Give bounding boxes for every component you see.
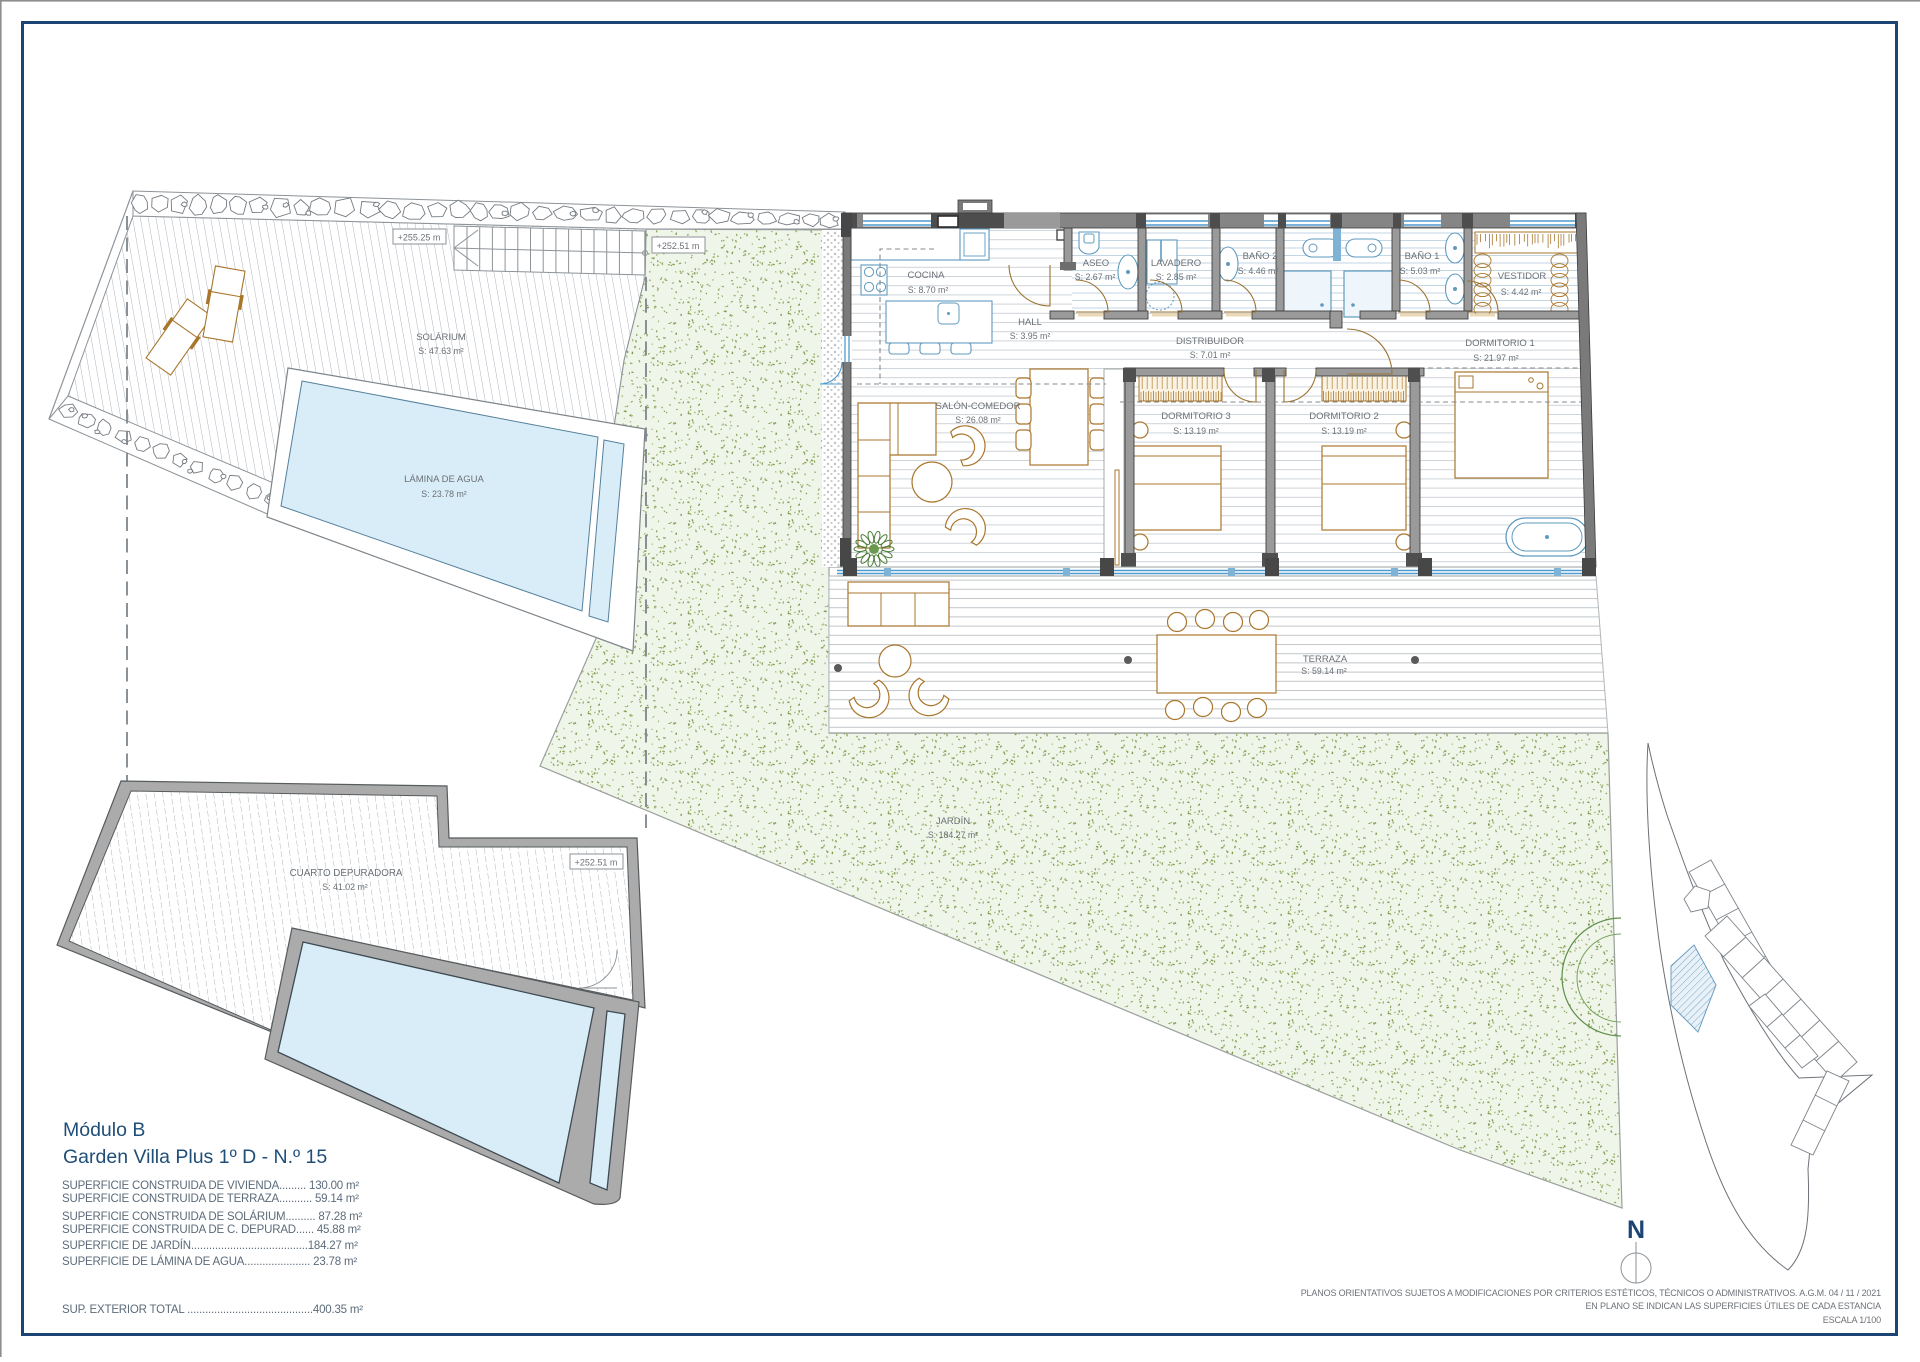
svg-text:S: 13.19 m²: S: 13.19 m² [1321,426,1367,436]
svg-text:S: 2.67 m²: S: 2.67 m² [1075,272,1116,282]
svg-text:S: 4.46 m²: S: 4.46 m² [1238,266,1279,276]
svg-text:SUPERFICIE DE JARDÍN..........: SUPERFICIE DE JARDÍN....................… [62,1239,358,1252]
svg-text:Módulo B: Módulo B [63,1119,145,1141]
svg-text:LAVADERO: LAVADERO [1151,258,1201,269]
svg-text:HALL: HALL [1018,317,1042,328]
svg-text:BAÑO 2: BAÑO 2 [1243,251,1278,262]
svg-text:DORMITORIO 1: DORMITORIO 1 [1465,338,1535,349]
svg-text:S: 26.08 m²: S: 26.08 m² [955,415,1001,425]
svg-text:VESTIDOR: VESTIDOR [1498,271,1547,282]
svg-text:+255.25 m: +255.25 m [398,233,441,243]
svg-text:S: 23.78 m²: S: 23.78 m² [421,489,467,499]
svg-text:SOLÁRIUM: SOLÁRIUM [416,332,466,343]
svg-text:COCINA: COCINA [908,270,946,281]
svg-text:S: 41.02 m²: S: 41.02 m² [322,882,368,892]
svg-text:SUPERFICIE CONSTRUIDA DE SOLÁR: SUPERFICIE CONSTRUIDA DE SOLÁRIUM.......… [62,1210,363,1223]
svg-text:S: 21.97 m²: S: 21.97 m² [1473,353,1519,363]
svg-text:Garden Villa Plus 1º D - N.º 1: Garden Villa Plus 1º D - N.º 15 [63,1146,327,1168]
svg-text:SUPERFICIE CONSTRUIDA DE TERRA: SUPERFICIE CONSTRUIDA DE TERRAZA........… [62,1193,359,1205]
svg-text:S: 13.19 m²: S: 13.19 m² [1173,426,1219,436]
svg-text:+252.51 m: +252.51 m [657,241,700,251]
svg-text:SALÓN-COMEDOR: SALÓN-COMEDOR [936,401,1021,412]
svg-text:S: 5.03 m²: S: 5.03 m² [1400,266,1441,276]
svg-text:JARDÍN: JARDÍN [936,816,970,827]
svg-text:SUP. EXTERIOR TOTAL ..........: SUP. EXTERIOR TOTAL ....................… [62,1304,363,1316]
svg-text:S: 59.14 m²: S: 59.14 m² [1301,666,1347,676]
svg-text:BAÑO 1: BAÑO 1 [1405,251,1440,262]
svg-text:ESCALA 1/100: ESCALA 1/100 [1823,1315,1881,1325]
svg-text:S: 7.01 m²: S: 7.01 m² [1190,350,1231,360]
svg-text:SUPERFICIE DE LÁMINA DE AGUA..: SUPERFICIE DE LÁMINA DE AGUA............… [62,1255,357,1268]
svg-text:S: 3.95 m²: S: 3.95 m² [1010,331,1051,341]
svg-text:+252.51 m: +252.51 m [575,858,618,868]
svg-text:SUPERFICIE CONSTRUIDA DE C. DE: SUPERFICIE CONSTRUIDA DE C. DEPURAD.....… [62,1224,361,1236]
svg-text:DORMITORIO 3: DORMITORIO 3 [1161,411,1231,422]
svg-text:LÁMINA DE AGUA: LÁMINA DE AGUA [404,474,484,485]
svg-text:S: 184.27 m²: S: 184.27 m² [928,830,978,840]
svg-text:SUPERFICIE CONSTRUIDA DE VIVIE: SUPERFICIE CONSTRUIDA DE VIVIENDA.......… [62,1180,359,1192]
svg-text:S: 8.70 m²: S: 8.70 m² [908,285,949,295]
svg-text:N: N [1627,1216,1645,1244]
svg-text:S: 4.42 m²: S: 4.42 m² [1501,287,1542,297]
svg-text:S: 2.85 m²: S: 2.85 m² [1156,272,1197,282]
svg-text:EN PLANO SE INDICAN LAS SUPERF: EN PLANO SE INDICAN LAS SUPERFICIES ÚTIL… [1585,1301,1881,1311]
svg-text:CUARTO DEPURADORA: CUARTO DEPURADORA [290,868,403,879]
svg-text:S: 47.63 m²: S: 47.63 m² [418,346,464,356]
svg-text:DISTRIBUIDOR: DISTRIBUIDOR [1176,336,1244,347]
svg-text:ASEO: ASEO [1083,258,1109,269]
svg-text:TERRAZA: TERRAZA [1303,654,1348,665]
svg-text:PLANOS ORIENTATIVOS SUJETOS A: PLANOS ORIENTATIVOS SUJETOS A MODIFICACI… [1301,1288,1881,1298]
svg-text:DORMITORIO 2: DORMITORIO 2 [1309,411,1379,422]
